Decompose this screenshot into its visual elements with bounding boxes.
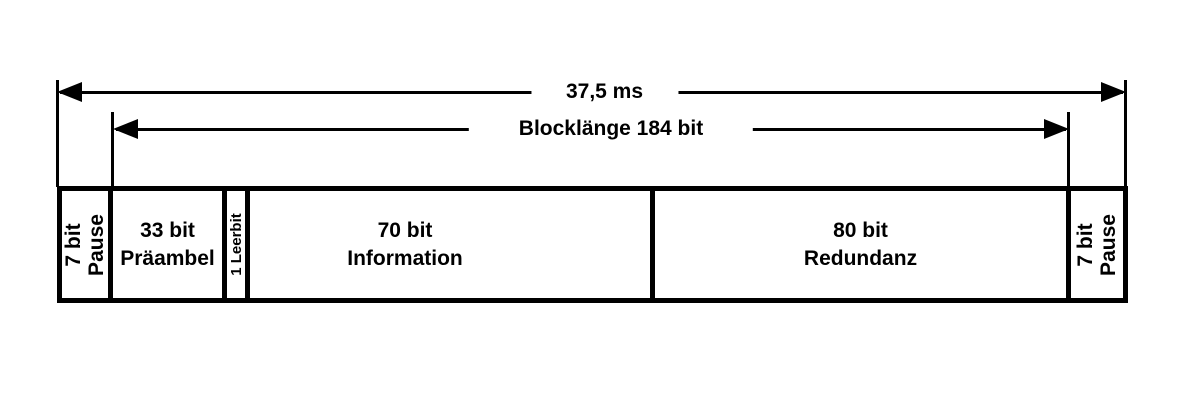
segment-label-line: 70 bit [347, 217, 463, 245]
segment-leerbit: 1 Leerbit [227, 191, 250, 298]
segment-label-line: 1 Leerbit [229, 213, 244, 276]
block-length-label: Blocklänge 184 bit [469, 116, 753, 142]
segment-label-line: Präambel [120, 245, 215, 273]
total-duration-label: 37,5 ms [531, 79, 678, 105]
arrow-head-right-icon [1044, 119, 1069, 139]
block-length-arrow: Blocklänge 184 bit [113, 118, 1069, 140]
segment-label-line: 80 bit [804, 217, 917, 245]
segment-label-line: Redundanz [804, 245, 917, 273]
segment-label-line: Information [347, 245, 463, 273]
arrow-head-left-icon [113, 119, 138, 139]
segment-praeambel: 33 bit Präambel [113, 191, 227, 298]
segment-pause-right-label: 7 bit Pause [1074, 214, 1120, 276]
segment-redundanz-label: 80 bit Redundanz [804, 217, 917, 273]
segment-label-line: 7 bit [62, 214, 85, 276]
segment-information: 70 bit Information [250, 191, 655, 298]
segment-pause-right: 7 bit Pause [1071, 191, 1123, 298]
segment-label-line: 33 bit [120, 217, 215, 245]
frame-timing-diagram: 37,5 ms Blocklänge 184 bit 7 bit Pause 3… [0, 0, 1200, 400]
segment-label-line: 7 bit [1074, 214, 1097, 276]
segment-pause-left: 7 bit Pause [62, 191, 113, 298]
segment-information-label: 70 bit Information [347, 217, 463, 273]
arrow-head-right-icon [1101, 82, 1126, 102]
segment-leerbit-label: 1 Leerbit [229, 213, 244, 276]
arrow-head-left-icon [57, 82, 82, 102]
frame-structure-bar: 7 bit Pause 33 bit Präambel 1 Leerbit 70… [57, 186, 1128, 303]
segment-praeambel-label: 33 bit Präambel [120, 217, 215, 273]
segment-redundanz: 80 bit Redundanz [655, 191, 1071, 298]
total-duration-arrow: 37,5 ms [57, 81, 1126, 103]
segment-label-line: Pause [85, 214, 108, 276]
segment-label-line: Pause [1097, 214, 1120, 276]
segment-pause-left-label: 7 bit Pause [62, 214, 108, 276]
